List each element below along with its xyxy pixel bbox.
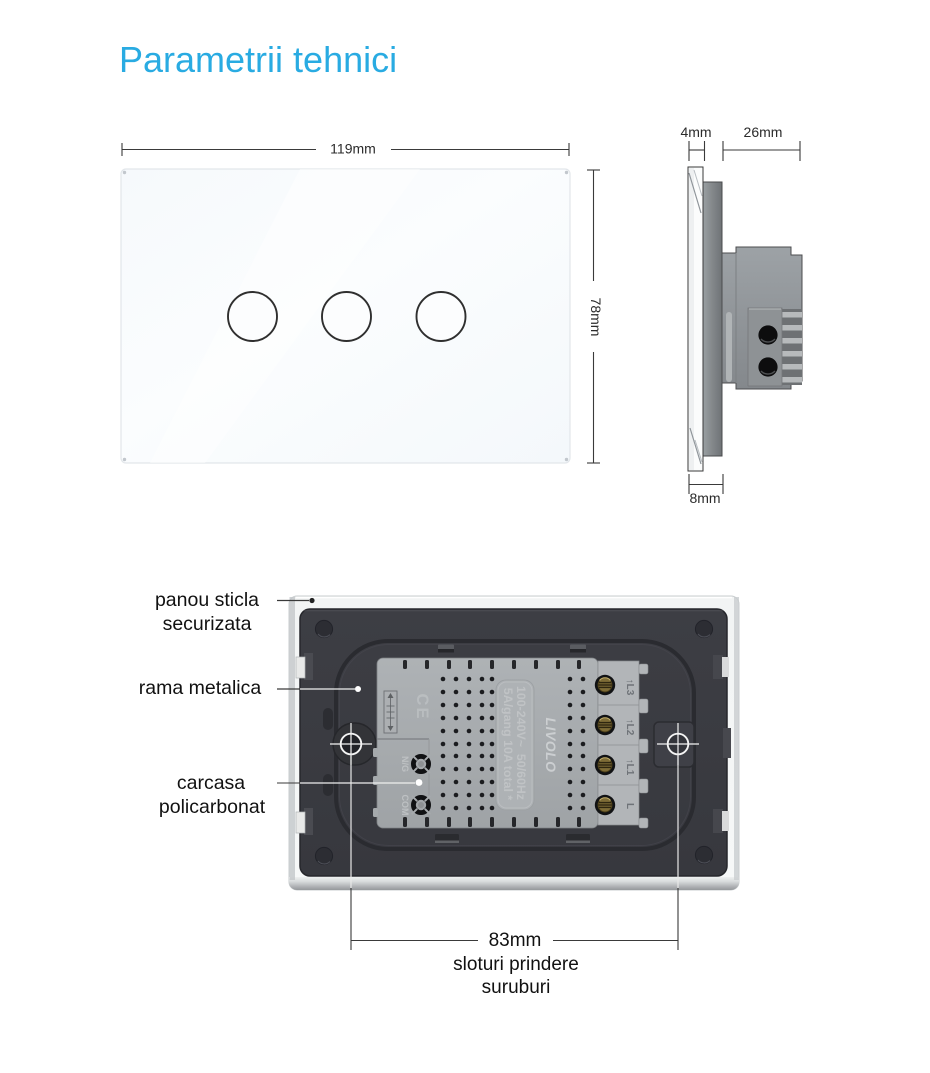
svg-text:119mm: 119mm	[330, 141, 376, 157]
svg-text:panou sticla: panou sticla	[155, 589, 259, 611]
svg-text:rama metalica: rama metalica	[139, 677, 262, 699]
svg-text:4mm: 4mm	[680, 124, 711, 140]
svg-text:COM: COM	[400, 795, 410, 816]
svg-text:suruburi: suruburi	[482, 977, 551, 998]
svg-text:8mm: 8mm	[689, 490, 720, 506]
svg-text:↑L2: ↑L2	[624, 719, 635, 736]
svg-text:↑L1: ↑L1	[624, 759, 635, 776]
svg-text:CE: CE	[413, 694, 431, 721]
svg-text:securizata: securizata	[163, 613, 252, 635]
svg-text:78mm: 78mm	[588, 298, 604, 337]
svg-text:N/G: N/G	[400, 756, 410, 772]
svg-text:5A/gang 10A total *: 5A/gang 10A total *	[501, 688, 515, 801]
svg-text:carcasa: carcasa	[177, 772, 245, 794]
svg-text:sloturi prindere: sloturi prindere	[453, 954, 579, 975]
svg-text:LIVOLO: LIVOLO	[543, 717, 559, 772]
svg-text:26mm: 26mm	[744, 124, 783, 140]
svg-text:83mm: 83mm	[489, 930, 542, 951]
svg-text:policarbonat: policarbonat	[159, 796, 266, 818]
svg-text:100-240V~ 50/60Hz: 100-240V~ 50/60Hz	[514, 686, 528, 800]
svg-text:↑L3: ↑L3	[624, 679, 635, 696]
svg-text:Parametrii tehnici: Parametrii tehnici	[119, 39, 397, 80]
svg-text:L: L	[624, 803, 635, 809]
